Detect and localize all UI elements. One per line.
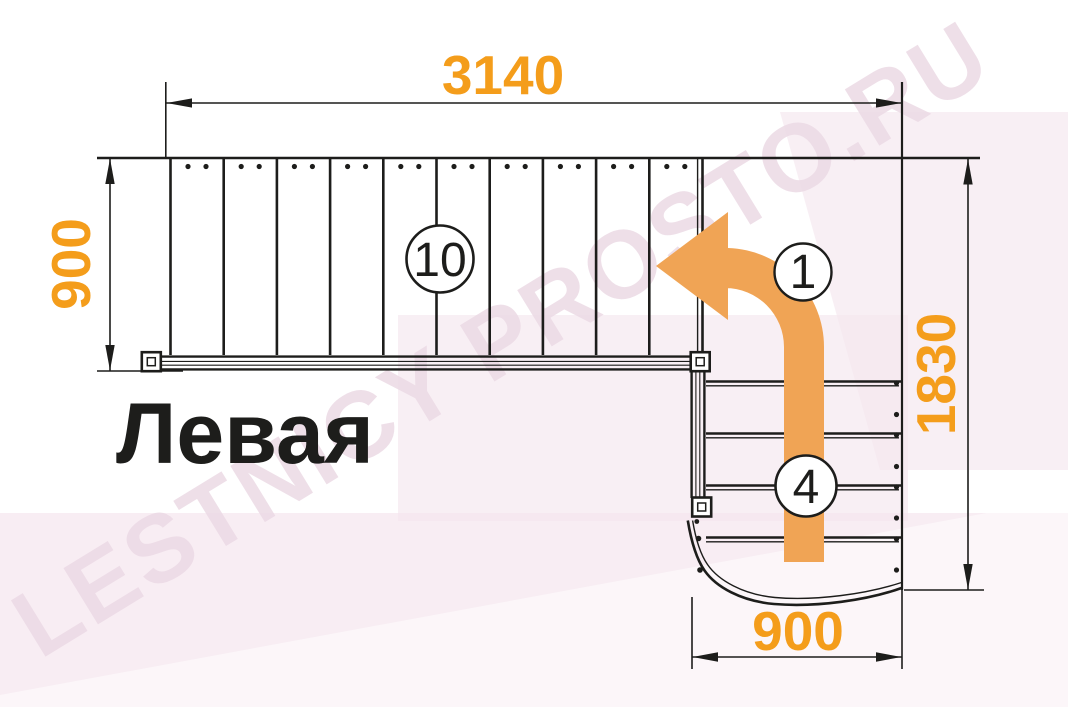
dim-label-left-depth: 900: [40, 218, 102, 310]
turn-step-label: 1: [790, 246, 817, 299]
dim-label-bottom-width: 900: [752, 600, 844, 662]
dim-label-right-height: 1830: [905, 313, 967, 435]
left-newel-post: [142, 352, 161, 371]
page-title: Левая: [116, 386, 374, 482]
staircase-plan-diagram: LESTNICY PROSTO.RU: [0, 0, 1068, 707]
dim-label-top-width: 3140: [442, 44, 564, 106]
lower-newel-post: [692, 498, 711, 517]
lower-flight-count-label: 4: [793, 461, 820, 514]
corner-newel-post: [691, 352, 710, 371]
upper-flight-count-label: 10: [413, 234, 466, 287]
